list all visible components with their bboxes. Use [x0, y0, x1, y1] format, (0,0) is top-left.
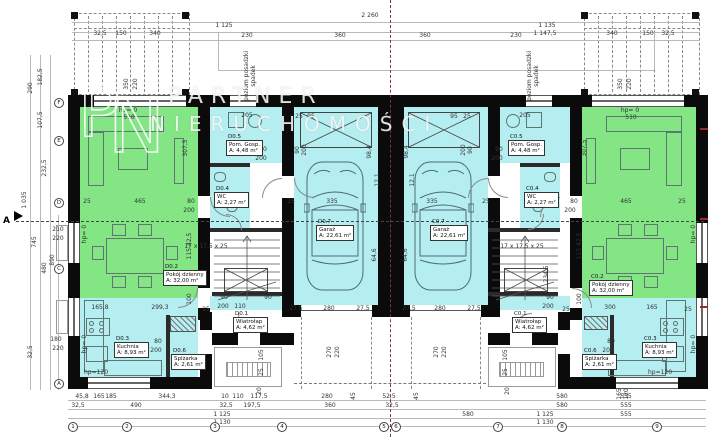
- dimension-label: spadek: [251, 65, 257, 87]
- dimension-label: 344,3: [158, 394, 175, 400]
- dimension-label: hp=120: [84, 370, 108, 376]
- dimension-label: 230: [510, 33, 521, 39]
- dimension-label: 745: [32, 236, 38, 247]
- dimension-label: 32,5: [28, 345, 34, 358]
- dimension-label: 10: [221, 394, 229, 400]
- axis-tick: [700, 218, 708, 220]
- dimension-label: 90: [468, 146, 474, 154]
- room-label: C0.4WCA: 2,27 m²: [524, 186, 559, 208]
- dimension-label: 200: [150, 348, 161, 354]
- grid-bubble: 1: [68, 422, 78, 432]
- room-area: A: 4,62 m²: [236, 325, 265, 331]
- dimension-label: 480: [42, 262, 48, 273]
- dimension-label: 205: [519, 113, 530, 119]
- dimension-label: 220: [52, 346, 63, 352]
- dimension-label: 27,5: [467, 306, 480, 312]
- dimension-label: 25: [562, 307, 570, 313]
- dimension-label: 232,5: [42, 159, 48, 176]
- dimension-label: 27,5: [356, 306, 369, 312]
- dimension-label: 280: [321, 394, 332, 400]
- dimension-label: 95: [307, 114, 315, 120]
- dimension-label: 270: [434, 346, 440, 357]
- dimension-label: 45: [414, 392, 420, 400]
- dimension-label: 25: [287, 199, 295, 205]
- dimension-label: 90: [495, 147, 503, 153]
- dimension-label: 205: [241, 113, 252, 119]
- dimension-label: hp= 0: [691, 335, 697, 353]
- dimension-label: 64,6: [403, 248, 409, 261]
- dimension-label: 105: [259, 349, 265, 360]
- room-label: D0.2Pokój dziennyA: 32,00 m²: [163, 264, 207, 286]
- dimension-label: 25: [503, 368, 509, 376]
- dimension-label: 115 42,5: [577, 233, 583, 260]
- dimension-label: 335: [326, 199, 337, 205]
- dimension-label: hp=120: [648, 370, 672, 376]
- room-area: A: 8,93 m²: [117, 350, 146, 356]
- dimension-label: 25: [482, 199, 490, 205]
- dimension-label: 210: [52, 227, 63, 233]
- dimension-label: 100: [577, 293, 583, 304]
- room-area: A: 4,62 m²: [515, 325, 544, 331]
- dimension-label: 270: [327, 346, 333, 357]
- dimension-label: 580: [556, 403, 567, 409]
- dimension-label: 307,5: [582, 139, 588, 156]
- dimension-label: 200: [302, 144, 308, 155]
- dimension-label: 234,5: [544, 265, 550, 282]
- grid-bubble: 5: [379, 422, 389, 432]
- dimension-label: 117,5: [250, 394, 267, 400]
- room-area: A: 2,27 m²: [217, 200, 246, 206]
- dimension-label: 25: [259, 368, 265, 376]
- dimension-label: 64,6: [372, 248, 378, 261]
- room-label: C0.3KuchniaA: 8,93 m²: [642, 336, 677, 358]
- dimension-label: 1 130: [536, 420, 553, 426]
- dimension-label: 1 135: [538, 23, 555, 29]
- dimension-label: 52,5: [382, 394, 395, 400]
- dimension-label: 280: [323, 306, 334, 312]
- room-area: A: 4,48 m²: [511, 148, 542, 154]
- dimension-label: hp= 0: [691, 225, 697, 243]
- axis-tick: [700, 128, 708, 130]
- dimension-label: 185: [105, 394, 116, 400]
- dimension-label: 80: [570, 199, 578, 205]
- dimension-label: 290: [28, 82, 34, 93]
- dimension-label: 182,5: [38, 68, 44, 85]
- grid-bubble: 8: [557, 422, 567, 432]
- dimension-label: 32,5: [661, 31, 674, 37]
- dimension-label: 27,5: [289, 306, 302, 312]
- axis-tick: [700, 306, 708, 308]
- dimension-label: 12,1: [375, 173, 381, 186]
- room-area: A: 4,48 m²: [229, 148, 260, 154]
- dimension-label: 32,5: [71, 403, 84, 409]
- dimension-label: 32,5: [219, 403, 232, 409]
- room-area: A: 2,61 m²: [174, 362, 203, 368]
- dimension-label: 17 x 17,5 x 25: [184, 244, 227, 250]
- dimension-label: 45: [351, 392, 357, 400]
- dimension-label: 490: [130, 403, 141, 409]
- floor-plan-canvas: A 2 2601 1251 1351 147,523036036023032,5…: [0, 0, 710, 437]
- dimension-label: 1 125: [536, 412, 553, 418]
- dimension-label: 95: [450, 114, 458, 120]
- dimension-label: 200: [183, 208, 194, 214]
- dimension-label: 580: [556, 394, 567, 400]
- dimension-label: 200: [217, 304, 228, 310]
- room-area: A: 2,27 m²: [527, 200, 556, 206]
- dimension-label: 300: [604, 305, 615, 311]
- dimension-label: 12,1: [410, 173, 416, 186]
- dimension-label: 110: [232, 394, 243, 400]
- dimension-label: 340: [606, 31, 617, 37]
- dimension-label: 2 260: [361, 13, 378, 19]
- dimension-label: 220: [52, 236, 63, 242]
- dimension-label: 25: [684, 307, 692, 313]
- room-area: A: 22,61 m²: [433, 233, 465, 239]
- dimension-label: 25: [202, 307, 210, 313]
- room-label: D0.3KuchniaA: 8,93 m²: [114, 336, 149, 358]
- dimension-label: 555: [620, 412, 631, 418]
- dimension-label: 90: [546, 295, 554, 301]
- dimension-label: 200: [542, 304, 553, 310]
- dimension-label: 80: [607, 339, 615, 345]
- dimension-label: 25: [463, 114, 471, 120]
- dimension-label: 307,5: [183, 139, 189, 156]
- grid-bubble: 6: [391, 422, 401, 432]
- dimension-label: 230: [241, 33, 252, 39]
- room-label: C0.5Pom. Gosp.A: 4,48 m²: [508, 134, 545, 156]
- dimension-label: 80: [154, 339, 162, 345]
- dimension-label: 220: [627, 78, 633, 89]
- dimension-label: 1 125: [213, 412, 230, 418]
- dimension-label: 105: [503, 349, 509, 360]
- dimension-label: 107,5: [38, 111, 44, 128]
- dimension-label: 220: [133, 78, 139, 89]
- dimension-label: hp= 0: [82, 225, 88, 243]
- dimension-label: 25: [295, 114, 303, 120]
- dimension-label: 200: [564, 208, 575, 214]
- section-marker-label: A: [3, 216, 10, 226]
- grid-bubble: 7: [493, 422, 503, 432]
- room-label: C0.7GarażA: 22,61 m²: [430, 219, 468, 241]
- dimension-label: 510: [625, 115, 636, 121]
- dimension-label: 350: [124, 78, 130, 89]
- dimension-label: 200: [255, 156, 266, 162]
- dimension-label: 90: [264, 295, 272, 301]
- room-area: A: 8,93 m²: [645, 350, 674, 356]
- party-wall-axis: [390, 0, 391, 437]
- grid-bubble: 2: [122, 422, 132, 432]
- dimension-label: 100: [187, 293, 193, 304]
- room-area: A: 32,00 m²: [592, 288, 630, 294]
- dimension-label: 165: [93, 394, 104, 400]
- dimension-label: 510: [123, 115, 134, 121]
- grid-bubble: F: [54, 98, 64, 108]
- dimension-label: spadek: [534, 65, 540, 87]
- dimension-label: 360: [334, 33, 345, 39]
- dimension-label: 150: [642, 31, 653, 37]
- dimension-label: 340: [149, 31, 160, 37]
- grid-bubble: E: [54, 136, 64, 146]
- room-area: A: 22,61 m²: [319, 233, 351, 239]
- dimension-label: 180: [50, 337, 61, 343]
- dimension-label: 20: [505, 387, 511, 395]
- dimension-label: 200: [491, 156, 502, 162]
- dimension-label: 580: [462, 412, 473, 418]
- dimension-label: 98,4: [367, 145, 373, 158]
- room-area: A: 32,00 m²: [166, 278, 204, 284]
- dimension-label: 80: [187, 199, 195, 205]
- dimension-label: 45,8: [75, 394, 88, 400]
- dimension-label: 25: [678, 199, 686, 205]
- dimension-label: 350: [618, 78, 624, 89]
- room-label: C0.6SpiżarkaA: 2,61 m²: [582, 348, 617, 370]
- dimension-label: 197,5: [243, 403, 260, 409]
- dimension-label: 98,4: [404, 145, 410, 158]
- room-label: D0.4WCA: 2,27 m²: [214, 186, 249, 208]
- dimension-label: 335: [426, 199, 437, 205]
- dimension-label: 25: [83, 199, 91, 205]
- grid-bubble: D: [54, 198, 64, 208]
- room-label: D0.1WiatrołapA: 4,62 m²: [233, 311, 268, 333]
- room-label: D0.6SpiżarkaA: 2,61 m²: [171, 348, 206, 370]
- dimension-label: 32,5: [93, 31, 106, 37]
- dimension-label: 360: [419, 33, 430, 39]
- dimension-label: 299,3: [151, 305, 168, 311]
- dimension-label: 165,8: [91, 305, 108, 311]
- dimension-label: 17 x 17,5 x 25: [500, 244, 543, 250]
- dimension-label: 110: [234, 304, 245, 310]
- dimension-label: 1 125: [215, 23, 232, 29]
- annotation-layer: 2 2601 1251 1351 147,523036036023032,515…: [0, 0, 710, 437]
- dimension-label: 360: [324, 403, 335, 409]
- dimension-label: 465: [134, 199, 145, 205]
- dimension-label: 1 147,5: [534, 31, 557, 37]
- room-label: C0.2Pokój dziennyA: 32,00 m²: [589, 274, 633, 296]
- room-label: D0.5Pom. Gosp.A: 4,48 m²: [226, 134, 263, 156]
- dimension-label: 1 035: [22, 191, 28, 208]
- dimension-label: 27,5: [402, 306, 415, 312]
- dimension-label: 465: [620, 199, 631, 205]
- dimension-label: hp= 0: [82, 335, 88, 353]
- dimension-label: 220: [442, 346, 448, 357]
- room-label: D0.7GarażA: 22,61 m²: [316, 219, 354, 241]
- grid-bubble: C: [54, 264, 64, 274]
- grid-bubble: A: [54, 379, 64, 389]
- dimension-label: 280: [434, 306, 445, 312]
- dimension-label: 555: [620, 394, 631, 400]
- dimension-label: 165: [646, 305, 657, 311]
- dimension-label: 90: [220, 295, 228, 301]
- grid-bubble: 9: [652, 422, 662, 432]
- dimension-label: 555: [620, 403, 631, 409]
- dimension-label: 32,5: [385, 403, 398, 409]
- room-label: C0.1WiatrołapA: 4,62 m²: [512, 311, 547, 333]
- dimension-label: 150: [115, 31, 126, 37]
- grid-bubble: 3: [210, 422, 220, 432]
- dimension-label: 220: [335, 346, 341, 357]
- room-area: A: 2,61 m²: [585, 362, 614, 368]
- grid-bubble: 4: [277, 422, 287, 432]
